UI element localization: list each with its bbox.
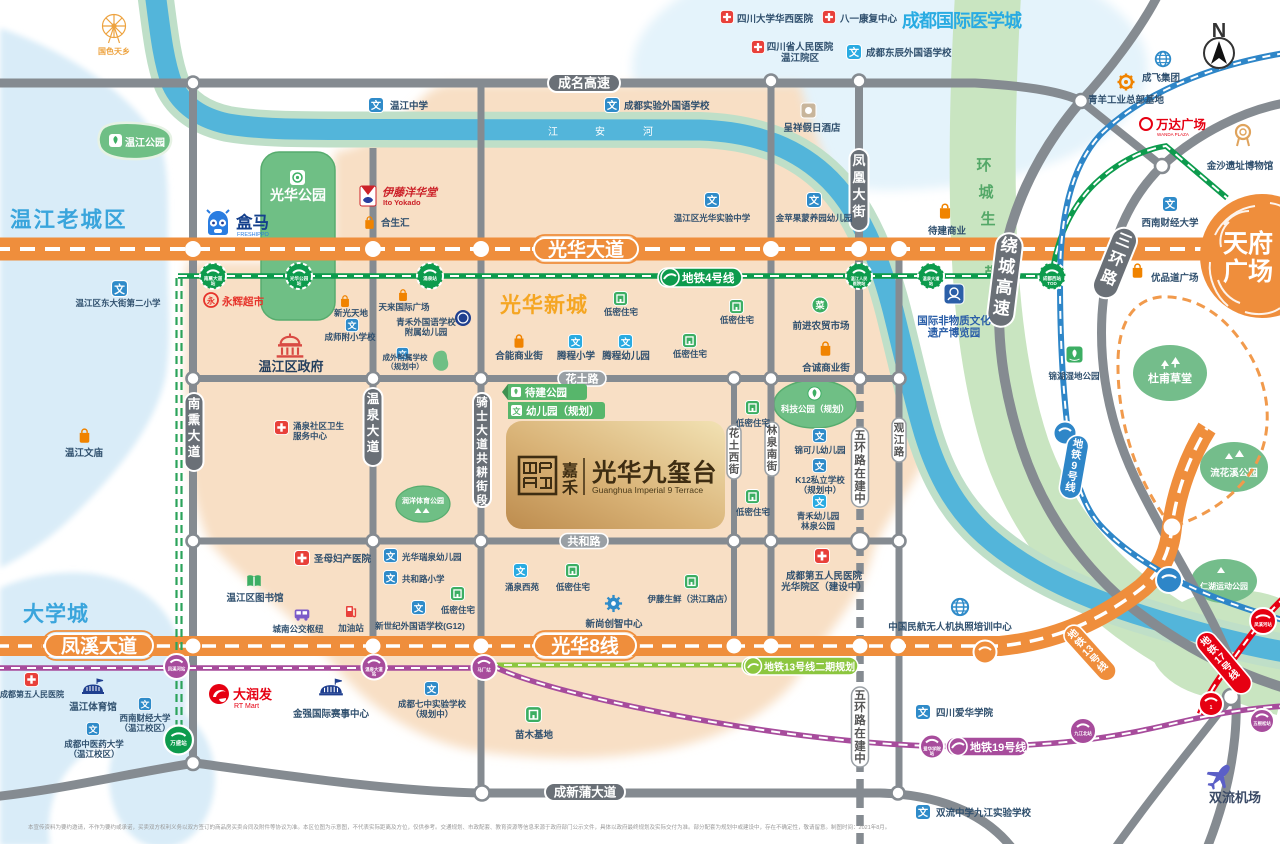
svg-text:广场: 广场 xyxy=(1223,257,1273,286)
svg-text:伊藤生鲜（洪江路店）: 伊藤生鲜（洪江路店） xyxy=(646,594,732,604)
svg-text:合能商业街: 合能商业街 xyxy=(495,350,543,362)
svg-text:大学城: 大学城 xyxy=(23,602,89,626)
svg-text:成师附小学校: 成师附小学校 xyxy=(324,332,376,342)
svg-text:腾程幼儿园: 腾程幼儿园 xyxy=(601,350,650,362)
svg-text:仁湖运动公园: 仁湖运动公园 xyxy=(1200,581,1248,591)
svg-text:合生汇: 合生汇 xyxy=(381,217,410,229)
svg-text:光华8线: 光华8线 xyxy=(550,635,619,658)
svg-text:温江中学: 温江中学 xyxy=(390,100,429,112)
svg-text:站: 站 xyxy=(372,671,377,678)
svg-text:遗产博览园: 遗产博览园 xyxy=(927,326,981,339)
svg-text:温江文庙: 温江文庙 xyxy=(65,447,104,459)
svg-text:呈祥假日酒店: 呈祥假日酒店 xyxy=(783,122,841,134)
svg-text:在: 在 xyxy=(854,726,866,740)
svg-text:天府: 天府 xyxy=(1223,229,1273,258)
svg-text:光华瑞泉幼儿园: 光华瑞泉幼儿园 xyxy=(401,552,462,562)
svg-text:速: 速 xyxy=(992,297,1011,319)
svg-text:双流机场: 双流机场 xyxy=(1209,790,1261,805)
svg-text:环: 环 xyxy=(976,157,991,174)
svg-text:路: 路 xyxy=(894,445,905,458)
svg-text:新尚创智中心: 新尚创智中心 xyxy=(585,618,643,630)
svg-text:大: 大 xyxy=(188,428,201,443)
svg-text:锦湖湿地公园: 锦湖湿地公园 xyxy=(1048,371,1099,381)
svg-text:杜甫草堂: 杜甫草堂 xyxy=(1148,371,1192,385)
svg-text:中: 中 xyxy=(854,751,866,765)
svg-text:（温江校区）: （温江校区） xyxy=(68,749,119,759)
svg-text:光华新城: 光华新城 xyxy=(499,293,588,317)
svg-text:西南财经大学: 西南财经大学 xyxy=(119,713,171,723)
svg-text:街: 街 xyxy=(766,460,778,473)
svg-text:马厂站: 马厂站 xyxy=(477,667,491,674)
svg-text:本宣传资料为要约邀请，不作为要约或承诺，买卖双方权利义务以双: 本宣传资料为要约邀请，不作为要约或承诺，买卖双方权利义务以双方签订的商品房买卖合… xyxy=(28,823,890,831)
svg-text:医院站: 医院站 xyxy=(853,280,866,287)
svg-text:Guanghua Imperial 9 Terrace: Guanghua Imperial 9 Terrace xyxy=(592,485,703,495)
svg-text:环: 环 xyxy=(854,441,866,454)
svg-text:温江区图书馆: 温江区图书馆 xyxy=(226,592,284,604)
svg-text:温: 温 xyxy=(367,392,380,406)
svg-text:街: 街 xyxy=(851,204,865,219)
svg-text:新世纪外国语学校(G12): 新世纪外国语学校(G12) xyxy=(375,621,465,631)
svg-text:青禾幼儿园: 青禾幼儿园 xyxy=(797,511,840,521)
svg-text:凤溪大道: 凤溪大道 xyxy=(61,635,137,658)
svg-text:光华院区（建设中）: 光华院区（建设中） xyxy=(780,581,867,593)
svg-text:低密住宅: 低密住宅 xyxy=(735,507,771,517)
svg-text:共和路小学: 共和路小学 xyxy=(402,574,445,584)
svg-text:TOD: TOD xyxy=(1047,281,1057,286)
svg-text:WANDA PLAZA: WANDA PLAZA xyxy=(1157,132,1189,137)
svg-text:安: 安 xyxy=(595,125,605,138)
svg-text:林泉公园: 林泉公园 xyxy=(801,521,835,531)
svg-text:观: 观 xyxy=(894,422,905,434)
svg-text:成都第五人民医院: 成都第五人民医院 xyxy=(0,689,64,699)
svg-text:加油站: 加油站 xyxy=(337,623,364,633)
svg-text:泉: 泉 xyxy=(766,436,778,449)
svg-text:国色天乡: 国色天乡 xyxy=(98,46,130,56)
svg-text:圣母妇产医院: 圣母妇产医院 xyxy=(313,553,372,565)
svg-text:待建公园: 待建公园 xyxy=(525,386,567,399)
svg-text:共和路: 共和路 xyxy=(568,534,602,548)
svg-text:低密住宅: 低密住宅 xyxy=(735,418,771,428)
svg-text:成都第五人民医院: 成都第五人民医院 xyxy=(786,570,863,582)
svg-text:FRESHIPPO: FRESHIPPO xyxy=(237,232,270,238)
svg-text:凰: 凰 xyxy=(852,170,865,185)
svg-text:凤: 凤 xyxy=(852,153,865,168)
svg-text:四川省人民医院: 四川省人民医院 xyxy=(767,41,834,53)
svg-text:地铁13号线二期规划: 地铁13号线二期规划 xyxy=(764,661,855,674)
svg-text:（温江校区）: （温江校区） xyxy=(119,723,170,733)
svg-text:在: 在 xyxy=(854,466,866,480)
svg-text:河: 河 xyxy=(643,126,653,138)
svg-text:温江体育馆: 温江体育馆 xyxy=(69,701,117,713)
svg-text:熏: 熏 xyxy=(188,412,201,427)
svg-text:骑: 骑 xyxy=(476,395,488,409)
svg-text:南: 南 xyxy=(188,396,201,411)
svg-text:士: 士 xyxy=(476,409,488,423)
svg-text:永: 永 xyxy=(206,296,215,306)
svg-text:地铁4号线: 地铁4号线 xyxy=(682,271,735,285)
svg-text:南: 南 xyxy=(767,448,778,461)
svg-text:成新蒲大道: 成新蒲大道 xyxy=(554,785,617,800)
svg-text:温江区光华实验中学: 温江区光华实验中学 xyxy=(674,213,751,223)
svg-text:街: 街 xyxy=(728,463,740,476)
svg-text:道: 道 xyxy=(188,444,201,459)
svg-text:生: 生 xyxy=(980,210,995,228)
svg-text:站: 站 xyxy=(211,280,216,287)
svg-text:站: 站 xyxy=(297,280,302,287)
svg-text:成都国际医学城: 成都国际医学城 xyxy=(902,10,1022,31)
svg-text:凤溪河站: 凤溪河站 xyxy=(1254,621,1272,628)
svg-text:待建商业: 待建商业 xyxy=(928,225,967,237)
svg-text:国际非物质文化: 国际非物质文化 xyxy=(917,314,991,327)
svg-text:绕: 绕 xyxy=(1000,234,1019,256)
svg-text:土: 土 xyxy=(729,439,740,452)
svg-text:四川大学华西医院: 四川大学华西医院 xyxy=(737,13,814,25)
svg-text:温江老城区: 温江老城区 xyxy=(10,207,128,232)
svg-text:温江院区: 温江院区 xyxy=(781,52,820,64)
svg-text:城: 城 xyxy=(997,256,1016,277)
svg-text:温江区东大街第二小学: 温江区东大街第二小学 xyxy=(75,298,161,308)
svg-text:菜: 菜 xyxy=(814,300,825,311)
svg-text:涌泉站: 涌泉站 xyxy=(423,275,437,282)
svg-text:锦可儿幼儿园: 锦可儿幼儿园 xyxy=(794,445,845,455)
svg-text:花: 花 xyxy=(729,427,740,440)
svg-text:光华九玺台: 光华九玺台 xyxy=(591,458,717,487)
svg-text:耕: 耕 xyxy=(475,465,488,479)
svg-text:新光天地: 新光天地 xyxy=(334,308,369,318)
svg-text:万盛站: 万盛站 xyxy=(169,739,187,747)
svg-text:西南财经大学: 西南财经大学 xyxy=(1141,217,1199,229)
svg-text:低密住宅: 低密住宅 xyxy=(719,315,755,325)
svg-text:润洋体育公园: 润洋体育公园 xyxy=(402,496,444,505)
svg-text:八一康复中心: 八一康复中心 xyxy=(839,13,898,25)
svg-text:花土路: 花土路 xyxy=(566,372,600,386)
svg-text:天来国际广场: 天来国际广场 xyxy=(378,302,430,312)
svg-text:建: 建 xyxy=(854,479,866,493)
svg-text:盒马: 盒马 xyxy=(235,212,269,232)
svg-text:大: 大 xyxy=(476,423,488,437)
svg-text:金苹果蒙养园幼儿园: 金苹果蒙养园幼儿园 xyxy=(775,213,853,223)
svg-text:合诚商业街: 合诚商业街 xyxy=(802,362,850,374)
svg-text:涌泉西苑: 涌泉西苑 xyxy=(505,582,540,592)
svg-text:RT Mart: RT Mart xyxy=(234,703,259,710)
svg-text:道: 道 xyxy=(476,437,488,451)
svg-text:江: 江 xyxy=(894,433,905,446)
svg-text:站: 站 xyxy=(930,750,935,757)
svg-text:低密住宅: 低密住宅 xyxy=(440,605,476,615)
svg-text:低密住宅: 低密住宅 xyxy=(555,582,591,592)
svg-text:低密住宅: 低密住宅 xyxy=(603,307,639,317)
svg-text:成都东辰外国语学校: 成都东辰外国语学校 xyxy=(866,47,952,59)
svg-text:地铁19号线: 地铁19号线 xyxy=(970,740,1026,754)
svg-text:光华大道: 光华大道 xyxy=(547,238,624,261)
svg-text:九江北站: 九江北站 xyxy=(1073,730,1092,737)
svg-text:（规划中）: （规划中） xyxy=(799,485,842,495)
svg-text:腾程小学: 腾程小学 xyxy=(556,350,596,362)
svg-text:青羊工业总部基地: 青羊工业总部基地 xyxy=(1088,94,1165,106)
svg-text:路: 路 xyxy=(854,453,866,467)
svg-text:成名高速: 成名高速 xyxy=(558,76,610,91)
svg-text:服务中心: 服务中心 xyxy=(293,431,328,441)
svg-text:永辉超市: 永辉超市 xyxy=(221,295,264,308)
svg-text:Ito Yokado: Ito Yokado xyxy=(383,198,421,207)
svg-text:成都实验外国语学校: 成都实验外国语学校 xyxy=(624,100,710,112)
svg-text:泉: 泉 xyxy=(366,407,380,422)
svg-text:幼儿园（规划）: 幼儿园（规划） xyxy=(526,405,600,418)
svg-text:成飞集团: 成飞集团 xyxy=(1142,72,1180,84)
svg-text:温江区政府: 温江区政府 xyxy=(258,359,323,374)
svg-text:路: 路 xyxy=(854,713,866,727)
svg-text:道: 道 xyxy=(367,439,380,454)
svg-text:中国民航无人机执照培训中心: 中国民航无人机执照培训中心 xyxy=(888,621,1012,633)
svg-text:涌泉社区卫生: 涌泉社区卫生 xyxy=(293,421,345,431)
svg-text:江: 江 xyxy=(548,126,558,138)
svg-text:城南公交枢纽: 城南公交枢纽 xyxy=(272,624,324,634)
svg-text:建: 建 xyxy=(854,739,866,753)
svg-text:凤溪河站: 凤溪河站 xyxy=(168,666,186,673)
svg-text:金强国际赛事中心: 金强国际赛事中心 xyxy=(292,708,370,720)
svg-text:附属幼儿园: 附属幼儿园 xyxy=(405,327,448,337)
svg-text:成都七中实验学校: 成都七中实验学校 xyxy=(398,699,467,709)
svg-text:成外附属学校: 成外附属学校 xyxy=(383,352,428,362)
svg-text:青禾外国语学校: 青禾外国语学校 xyxy=(396,317,456,327)
svg-text:五: 五 xyxy=(854,689,866,702)
svg-text:大: 大 xyxy=(367,423,380,438)
svg-text:大润发: 大润发 xyxy=(233,687,273,702)
svg-text:（规划中）: （规划中） xyxy=(386,361,424,371)
svg-text:街: 街 xyxy=(475,479,488,493)
svg-text:西: 西 xyxy=(729,452,740,464)
svg-text:段: 段 xyxy=(476,493,488,507)
svg-text:五: 五 xyxy=(854,429,866,442)
svg-text:光华公园: 光华公园 xyxy=(269,187,326,203)
svg-text:苗木基地: 苗木基地 xyxy=(515,729,554,741)
svg-text:科技公园（规划）: 科技公园（规划） xyxy=(781,404,849,414)
svg-text:前进农贸市场: 前进农贸市场 xyxy=(792,320,850,332)
svg-text:环: 环 xyxy=(854,701,866,714)
svg-text:中: 中 xyxy=(854,491,866,505)
svg-text:四川爱华学院: 四川爱华学院 xyxy=(936,707,994,719)
svg-text:文: 文 xyxy=(513,406,522,416)
svg-text:双流中学九江实验学校: 双流中学九江实验学校 xyxy=(935,807,1032,819)
svg-text:禾: 禾 xyxy=(562,479,578,497)
svg-text:优品道广场: 优品道广场 xyxy=(1151,272,1199,284)
svg-text:金沙遗址博物馆: 金沙遗址博物馆 xyxy=(1206,160,1274,172)
svg-text:城: 城 xyxy=(978,183,993,201)
svg-text:成都中医药大学: 成都中医药大学 xyxy=(64,739,124,749)
svg-text:K12私立学校: K12私立学校 xyxy=(795,475,845,485)
svg-text:五根松站: 五根松站 xyxy=(1253,720,1271,727)
svg-text:嘉: 嘉 xyxy=(561,461,578,480)
svg-text:共: 共 xyxy=(476,451,488,465)
svg-text:大: 大 xyxy=(852,187,865,202)
svg-text:1: 1 xyxy=(1210,705,1213,711)
svg-text:温江公园: 温江公园 xyxy=(125,136,165,149)
svg-text:低密住宅: 低密住宅 xyxy=(672,349,708,359)
svg-text:（规划中）: （规划中） xyxy=(411,709,454,719)
svg-text:高: 高 xyxy=(994,276,1013,298)
svg-text:万达广场: 万达广场 xyxy=(1155,117,1206,132)
